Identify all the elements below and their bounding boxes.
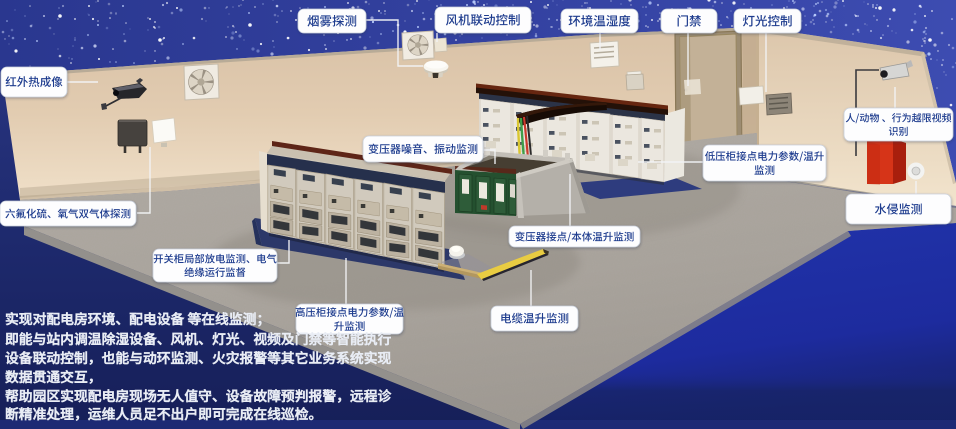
svg-text:监测: 监测 <box>754 163 775 178</box>
svg-text:设备联动控制，也能与动环监测、火灾报警等其它业务系统实现: 设备联动控制，也能与动环监测、火灾报警等其它业务系统实现 <box>5 347 392 367</box>
svg-text:红外热成像: 红外热成像 <box>5 74 63 90</box>
svg-text:烟雾探测: 烟雾探测 <box>307 11 357 30</box>
svg-text:变压器接点/本体温升监测: 变压器接点/本体温升监测 <box>515 229 635 244</box>
svg-text:风机联动控制: 风机联动控制 <box>445 10 520 29</box>
svg-text:低压柜接点电力参数/温升: 低压柜接点电力参数/温升 <box>705 149 825 164</box>
svg-text:六氟化硫、氧气双气体探测: 六氟化硫、氧气双气体探测 <box>5 206 131 221</box>
svg-text:绝缘运行监督: 绝缘运行监督 <box>184 264 246 279</box>
svg-text:数据贯通交互，: 数据贯通交互， <box>4 366 102 386</box>
svg-text:高压柜接点电力参数/温: 高压柜接点电力参数/温 <box>295 305 405 320</box>
svg-text:即能与站内调温除湿设备、风机、灯光、视频及门禁等智能执行: 即能与站内调温除湿设备、风机、灯光、视频及门禁等智能执行 <box>5 328 392 348</box>
svg-text:变压器噪音、振动监测: 变压器噪音、振动监测 <box>368 141 478 157</box>
svg-text:识别: 识别 <box>889 123 909 138</box>
svg-text:环境温湿度: 环境温湿度 <box>568 11 631 30</box>
svg-text:电缆温升监测: 电缆温升监测 <box>500 311 569 327</box>
svg-text:水侵监测: 水侵监测 <box>874 200 922 217</box>
svg-text:开关柜局部放电监测、电气: 开关柜局部放电监测、电气 <box>153 250 277 265</box>
svg-text:实现对配电房环境、配电设备 等在线监测；: 实现对配电房环境、配电设备 等在线监测； <box>5 308 270 328</box>
svg-text:灯光控制: 灯光控制 <box>742 11 792 30</box>
svg-text:断精准处理，运维人员足不出户即可完成在线巡检。: 断精准处理，运维人员足不出户即可完成在线巡检。 <box>5 403 322 423</box>
svg-text:门禁: 门禁 <box>676 11 702 30</box>
svg-text:帮助园区实现配电房现场无人值守、设备故障预判报警，远程诊: 帮助园区实现配电房现场无人值守、设备故障预判报警，远程诊 <box>5 385 393 405</box>
